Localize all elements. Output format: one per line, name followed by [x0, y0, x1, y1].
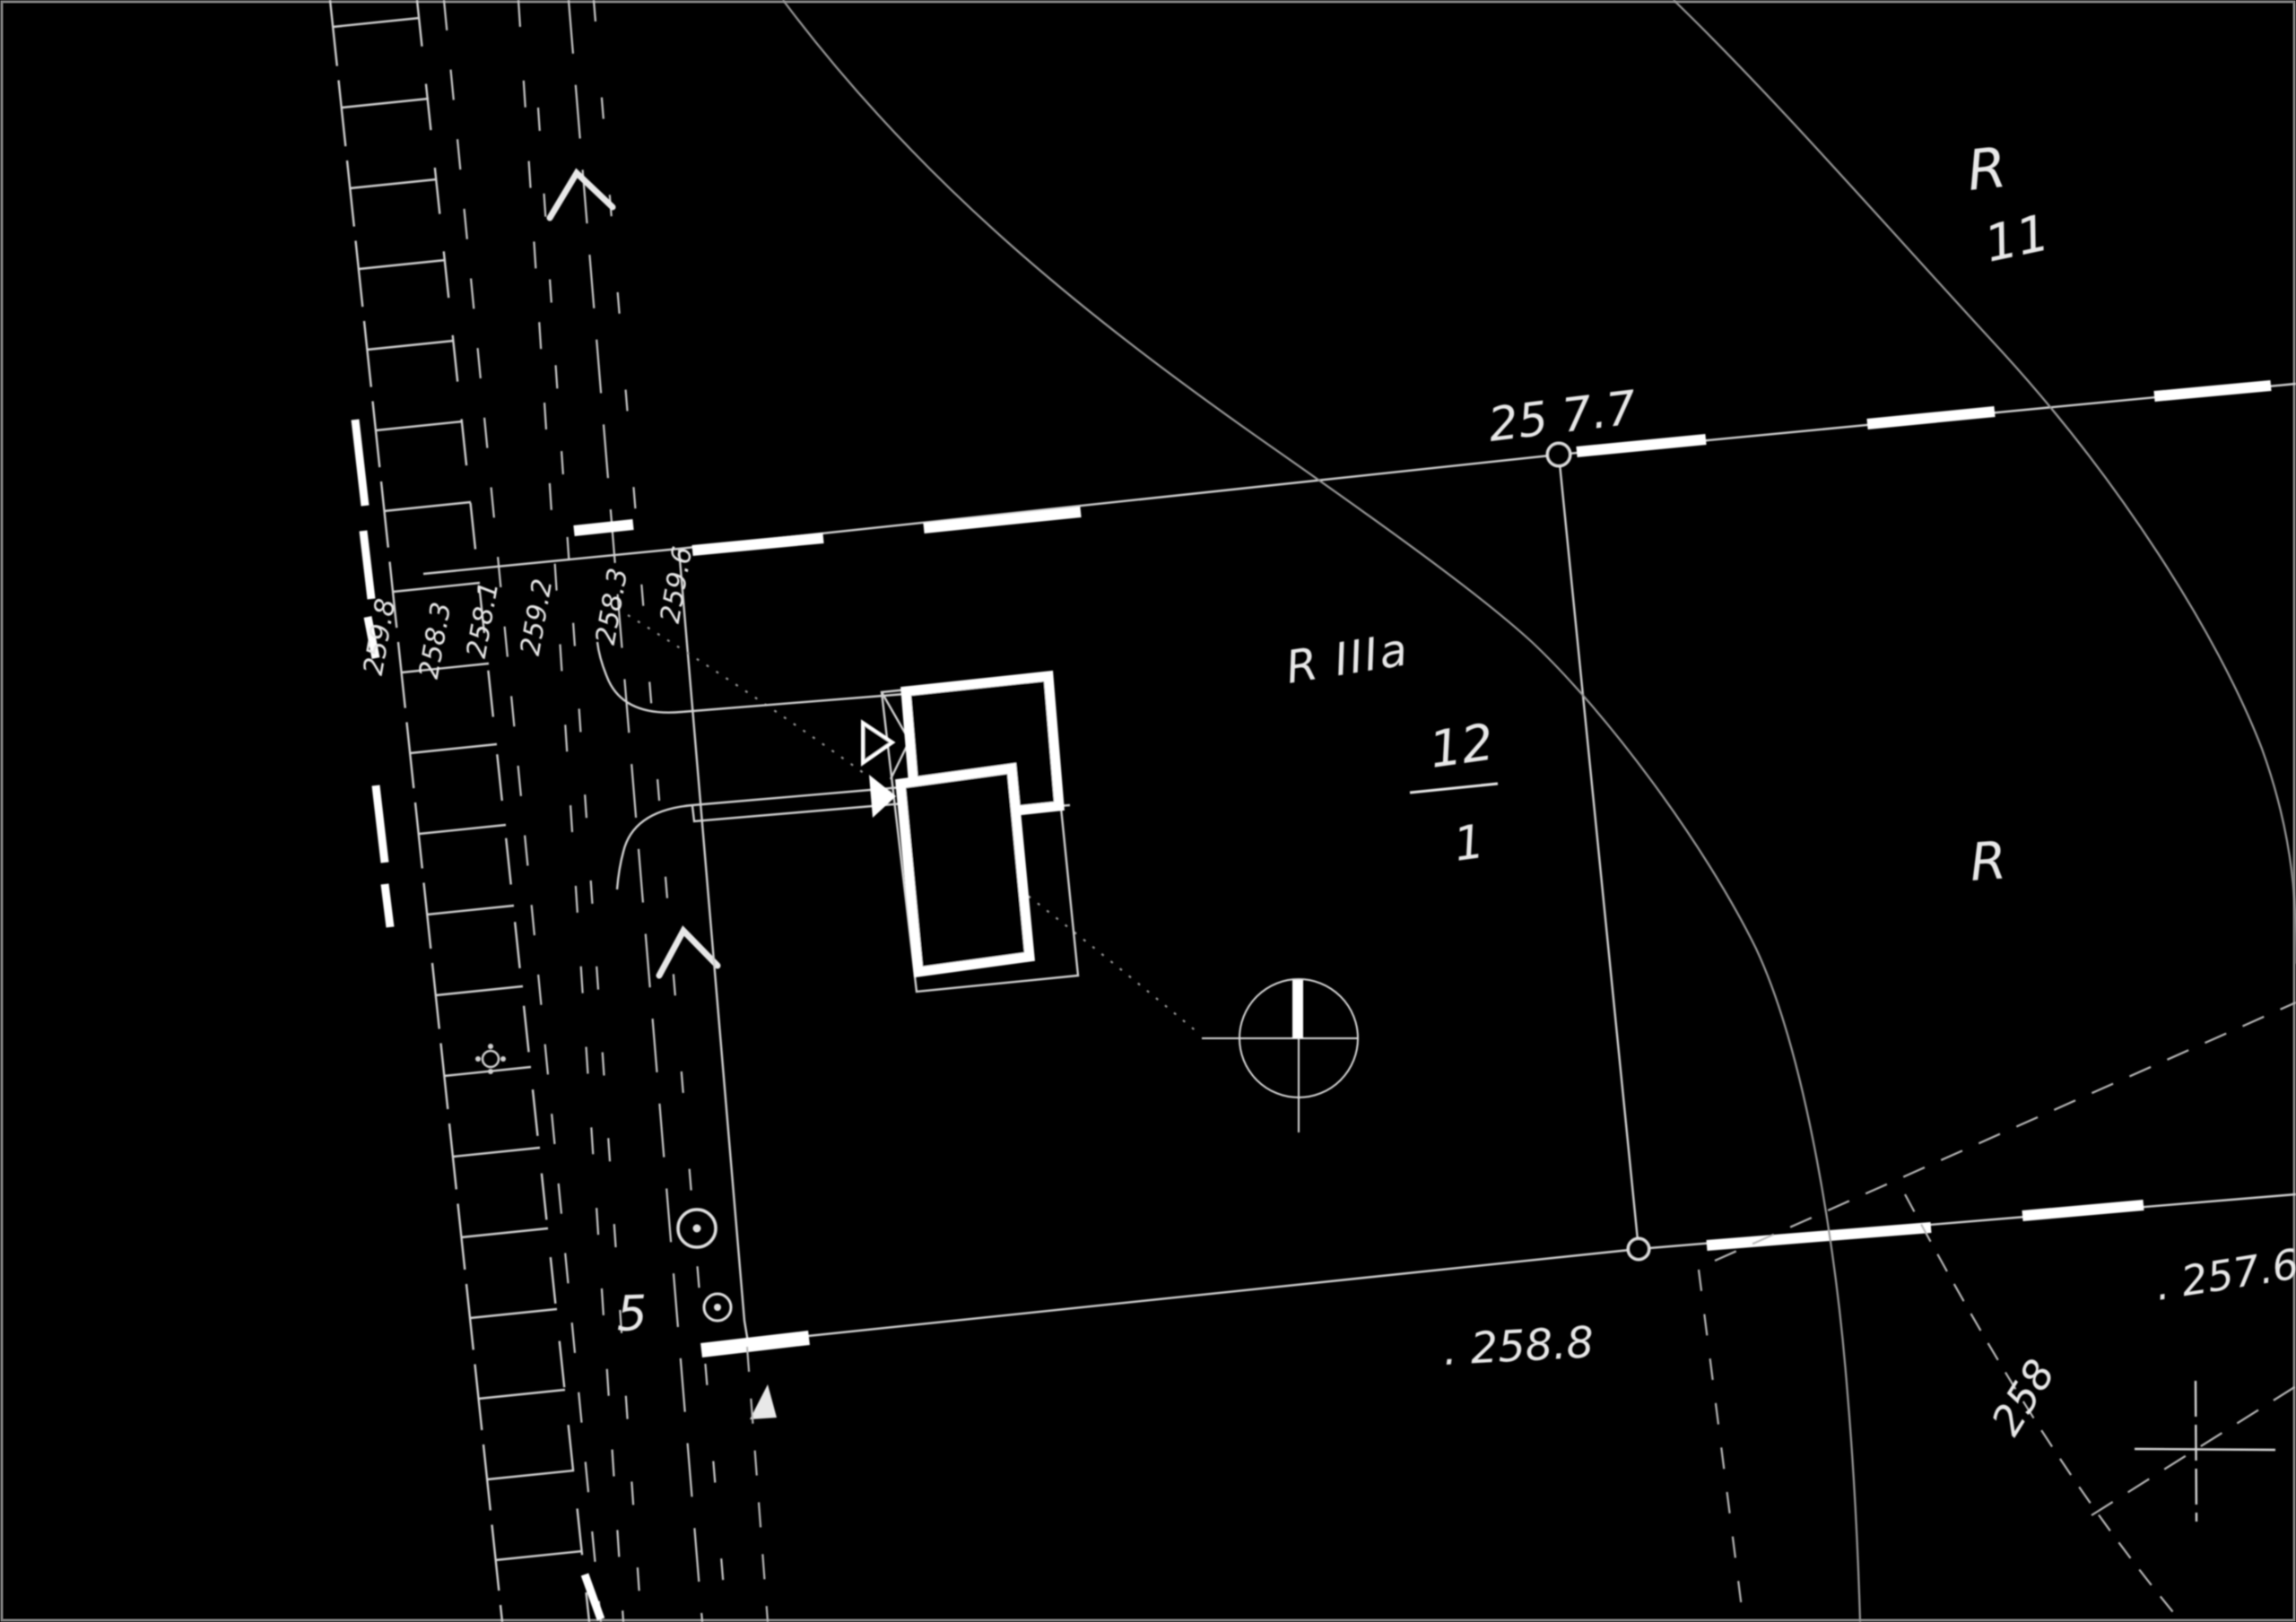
label-parcel-12-numerator: 12 — [1426, 714, 1498, 780]
map-background — [0, 0, 2296, 1622]
boundary-node-bottom — [1628, 1238, 1649, 1260]
building-lower — [900, 768, 1030, 972]
site-plan-drawing: R 11 25 7.7 R IIIa 12 1 R . 258.8 . 257.… — [0, 0, 2296, 1622]
boundary-node-top — [1547, 443, 1570, 466]
label-road-number-5: 5 — [615, 1285, 648, 1342]
label-region-r-right: R — [1968, 829, 2008, 893]
label-spot-elev-2588: . 258.8 — [1442, 1317, 1596, 1375]
scanned-map-image: R 11 25 7.7 R IIIa 12 1 R . 258.8 . 257.… — [0, 0, 2296, 1622]
label-region-r-top: R — [1964, 134, 2009, 204]
